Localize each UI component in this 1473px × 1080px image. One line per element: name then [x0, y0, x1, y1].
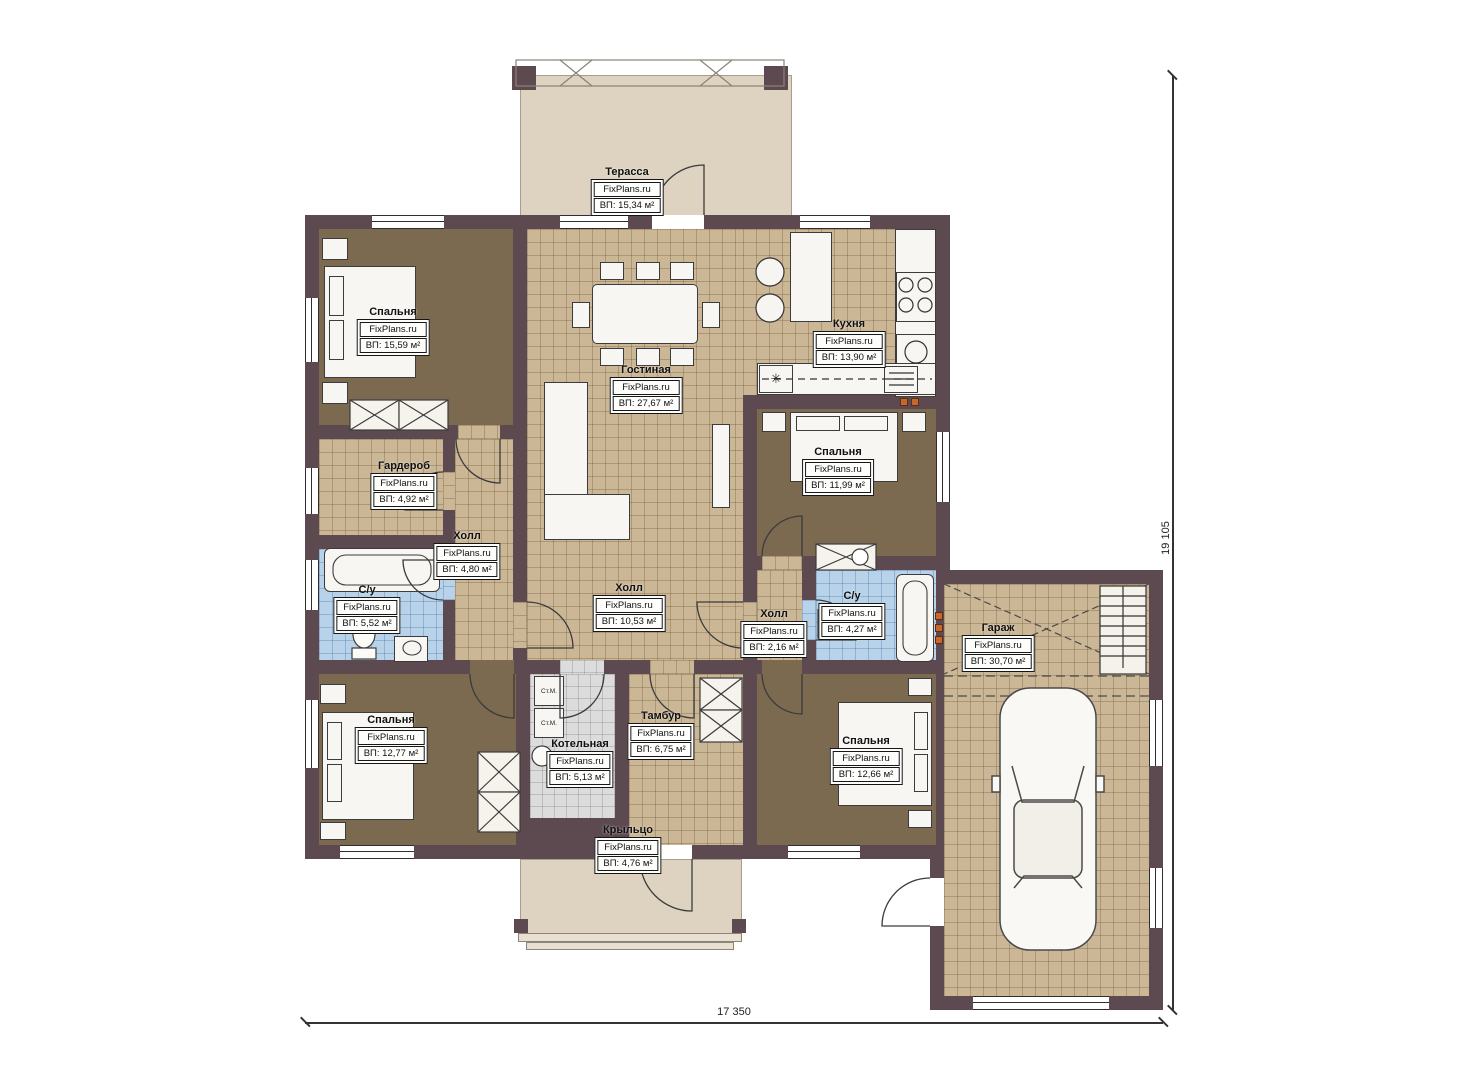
- vent-marker: [935, 612, 943, 620]
- room-area: ВП: 10,53 м²: [596, 614, 663, 629]
- brand-label: FixPlans.ru: [436, 546, 497, 561]
- brand-label: FixPlans.ru: [373, 476, 434, 491]
- dimension-line-bottom: [305, 1022, 1163, 1024]
- room-name: Гардероб: [370, 460, 437, 472]
- room-area: ВП: 4,27 м²: [821, 622, 882, 637]
- washing-machine-label: Ст.М.: [541, 688, 557, 695]
- room-label-bathroom-left: С/у FixPlans.ruВП: 5,52 м²: [333, 584, 400, 634]
- room-area: ВП: 2,16 м²: [743, 640, 804, 655]
- nightstand: [322, 238, 348, 260]
- porch-step: [526, 942, 734, 950]
- room-area: ВП: 5,13 м²: [549, 770, 610, 785]
- room-area: ВП: 12,77 м²: [358, 746, 425, 761]
- room-area: ВП: 4,80 м²: [436, 562, 497, 577]
- window: [788, 845, 860, 859]
- fridge: ✳: [759, 365, 793, 393]
- chair: [702, 302, 720, 328]
- vent-marker: [935, 624, 943, 632]
- room-name: Кухня: [813, 318, 886, 330]
- room-name: Терасса: [591, 166, 664, 178]
- window: [560, 215, 628, 229]
- brand-label: FixPlans.ru: [613, 380, 680, 395]
- window: [372, 215, 444, 229]
- room-name: Холл: [433, 530, 500, 542]
- room-name: Гостиная: [610, 364, 683, 376]
- window: [305, 468, 319, 514]
- pillow: [844, 416, 888, 431]
- room-area: ВП: 4,92 м²: [373, 492, 434, 507]
- room-label-bedroom-bottom-center: Спальня FixPlans.ruВП: 12,66 м²: [830, 735, 903, 785]
- floor-plan: ✳ Ст.М. Ст.М.: [0, 0, 1473, 1080]
- bathtub: [896, 574, 934, 662]
- room-label-porch: Крыльцо FixPlans.ruВП: 4,76 м²: [594, 824, 661, 874]
- dimension-width-label: 17 350: [305, 1006, 1163, 1018]
- room-area: ВП: 6,75 м²: [630, 742, 691, 757]
- washing-machine-label: Ст.М.: [541, 720, 557, 727]
- garage-window: [1149, 868, 1163, 928]
- room-area: ВП: 27,67 м²: [613, 396, 680, 411]
- terrace-door-opening: [652, 215, 704, 229]
- room-label-bedroom-right: Спальня FixPlans.ruВП: 11,99 м²: [802, 446, 874, 496]
- porch-step: [518, 933, 742, 942]
- room-name: С/у: [818, 590, 885, 602]
- brand-label: FixPlans.ru: [743, 624, 804, 639]
- dimension-height-label: 19 105: [1160, 508, 1172, 568]
- nightstand: [762, 412, 786, 432]
- nightstand: [908, 810, 932, 828]
- pillow: [914, 712, 928, 750]
- dining-table: [592, 284, 698, 344]
- room-name: Спальня: [830, 735, 903, 747]
- porch-post: [514, 919, 528, 933]
- pillow: [327, 764, 342, 802]
- room-area: ВП: 15,59 м²: [360, 338, 427, 353]
- brand-label: FixPlans.ru: [336, 600, 397, 615]
- dishwasher: [884, 366, 918, 393]
- vent-marker: [935, 636, 943, 644]
- stove: [896, 272, 936, 322]
- window: [936, 432, 950, 502]
- fridge-icon: ✳: [771, 371, 782, 387]
- room-area: ВП: 30,70 м²: [965, 654, 1032, 669]
- window: [305, 298, 319, 362]
- room-name: Гараж: [962, 622, 1035, 634]
- pillow: [329, 276, 344, 316]
- room-label-bedroom-bottom-left: Спальня FixPlans.ruВП: 12,77 м²: [355, 714, 428, 764]
- room-label-living-room: Гостиная FixPlans.ruВП: 27,67 м²: [610, 364, 683, 414]
- room-label-kitchen: Кухня FixPlans.ruВП: 13,90 м²: [813, 318, 886, 368]
- room-name: Крыльцо: [594, 824, 661, 836]
- room-name: Тамбур: [627, 710, 694, 722]
- room-name: Спальня: [357, 306, 430, 318]
- pillow: [796, 416, 840, 431]
- brand-label: FixPlans.ru: [596, 598, 663, 613]
- room-area: ВП: 5,52 м²: [336, 616, 397, 631]
- sofa: [544, 382, 588, 498]
- bathroom-sink: [394, 636, 428, 662]
- nightstand: [322, 382, 348, 404]
- terrace-post: [764, 66, 788, 90]
- porch-post: [732, 919, 746, 933]
- room-name: Холл: [593, 582, 666, 594]
- door-opening: [650, 660, 694, 674]
- window: [305, 560, 319, 610]
- door-opening: [762, 660, 802, 674]
- room-label-bathroom-right: С/у FixPlans.ruВП: 4,27 м²: [818, 590, 885, 640]
- room-area: ВП: 15,34 м²: [594, 198, 661, 213]
- room-name: Котельная: [546, 738, 613, 750]
- window: [800, 215, 870, 229]
- door-opening: [458, 425, 500, 439]
- brand-label: FixPlans.ru: [549, 754, 610, 769]
- door-opening: [513, 602, 527, 648]
- tv-stand: [712, 424, 730, 508]
- terrace-post: [512, 66, 536, 90]
- garage-side-door-opening: [930, 878, 944, 926]
- room-area: ВП: 4,76 м²: [597, 856, 658, 871]
- room-label-garage: Гараж FixPlans.ruВП: 30,70 м²: [962, 622, 1035, 672]
- brand-label: FixPlans.ru: [630, 726, 691, 741]
- room-name: С/у: [333, 584, 400, 596]
- room-area: ВП: 13,90 м²: [816, 350, 883, 365]
- brand-label: FixPlans.ru: [358, 730, 425, 745]
- room-label-hall-center: Холл FixPlans.ruВП: 10,53 м²: [593, 582, 666, 632]
- nightstand: [320, 684, 346, 704]
- vent-marker: [900, 398, 908, 406]
- nightstand: [902, 412, 926, 432]
- room-name: Спальня: [355, 714, 428, 726]
- room-name: Спальня: [802, 446, 874, 458]
- sofa: [544, 494, 630, 540]
- room-area: ВП: 11,99 м²: [805, 478, 871, 493]
- washing-machine: Ст.М.: [534, 676, 564, 706]
- brand-label: FixPlans.ru: [360, 322, 427, 337]
- room-label-hall-right: Холл FixPlans.ruВП: 2,16 м²: [740, 608, 807, 658]
- brand-label: FixPlans.ru: [965, 638, 1032, 653]
- brand-label: FixPlans.ru: [821, 606, 882, 621]
- vent-marker: [911, 398, 919, 406]
- room-label-boiler-room: Котельная FixPlans.ruВП: 5,13 м²: [546, 738, 613, 788]
- nightstand: [908, 678, 932, 696]
- window: [305, 700, 319, 768]
- room-label-terrace: Терасса FixPlans.ruВП: 15,34 м²: [591, 166, 664, 216]
- brand-label: FixPlans.ru: [594, 182, 661, 197]
- chair: [670, 262, 694, 280]
- room-label-bedroom-top-left: Спальня FixPlans.ruВП: 15,59 м²: [357, 306, 430, 356]
- kitchen-cabinet: [790, 232, 832, 322]
- room-name: Холл: [740, 608, 807, 620]
- garage-window: [1149, 700, 1163, 766]
- pillow: [329, 320, 344, 360]
- room-label-wardrobe: Гардероб FixPlans.ruВП: 4,92 м²: [370, 460, 437, 510]
- chair: [572, 302, 590, 328]
- room-area: ВП: 12,66 м²: [833, 767, 900, 782]
- room-label-vestibule: Тамбур FixPlans.ruВП: 6,75 м²: [627, 710, 694, 760]
- door-opening: [443, 472, 455, 510]
- brand-label: FixPlans.ru: [597, 840, 658, 855]
- brand-label: FixPlans.ru: [833, 751, 900, 766]
- door-opening: [762, 556, 802, 570]
- chair: [600, 262, 624, 280]
- nightstand: [320, 822, 346, 840]
- brand-label: FixPlans.ru: [805, 462, 871, 477]
- washing-machine: Ст.М.: [534, 708, 564, 738]
- dimension-line-right: [1172, 75, 1174, 1010]
- pillow: [914, 754, 928, 792]
- door-opening: [470, 660, 514, 674]
- window: [340, 845, 414, 859]
- door-opening: [560, 660, 604, 674]
- room-label-hall-left: Холл FixPlans.ruВП: 4,80 м²: [433, 530, 500, 580]
- chair: [636, 262, 660, 280]
- pillow: [327, 722, 342, 760]
- brand-label: FixPlans.ru: [816, 334, 883, 349]
